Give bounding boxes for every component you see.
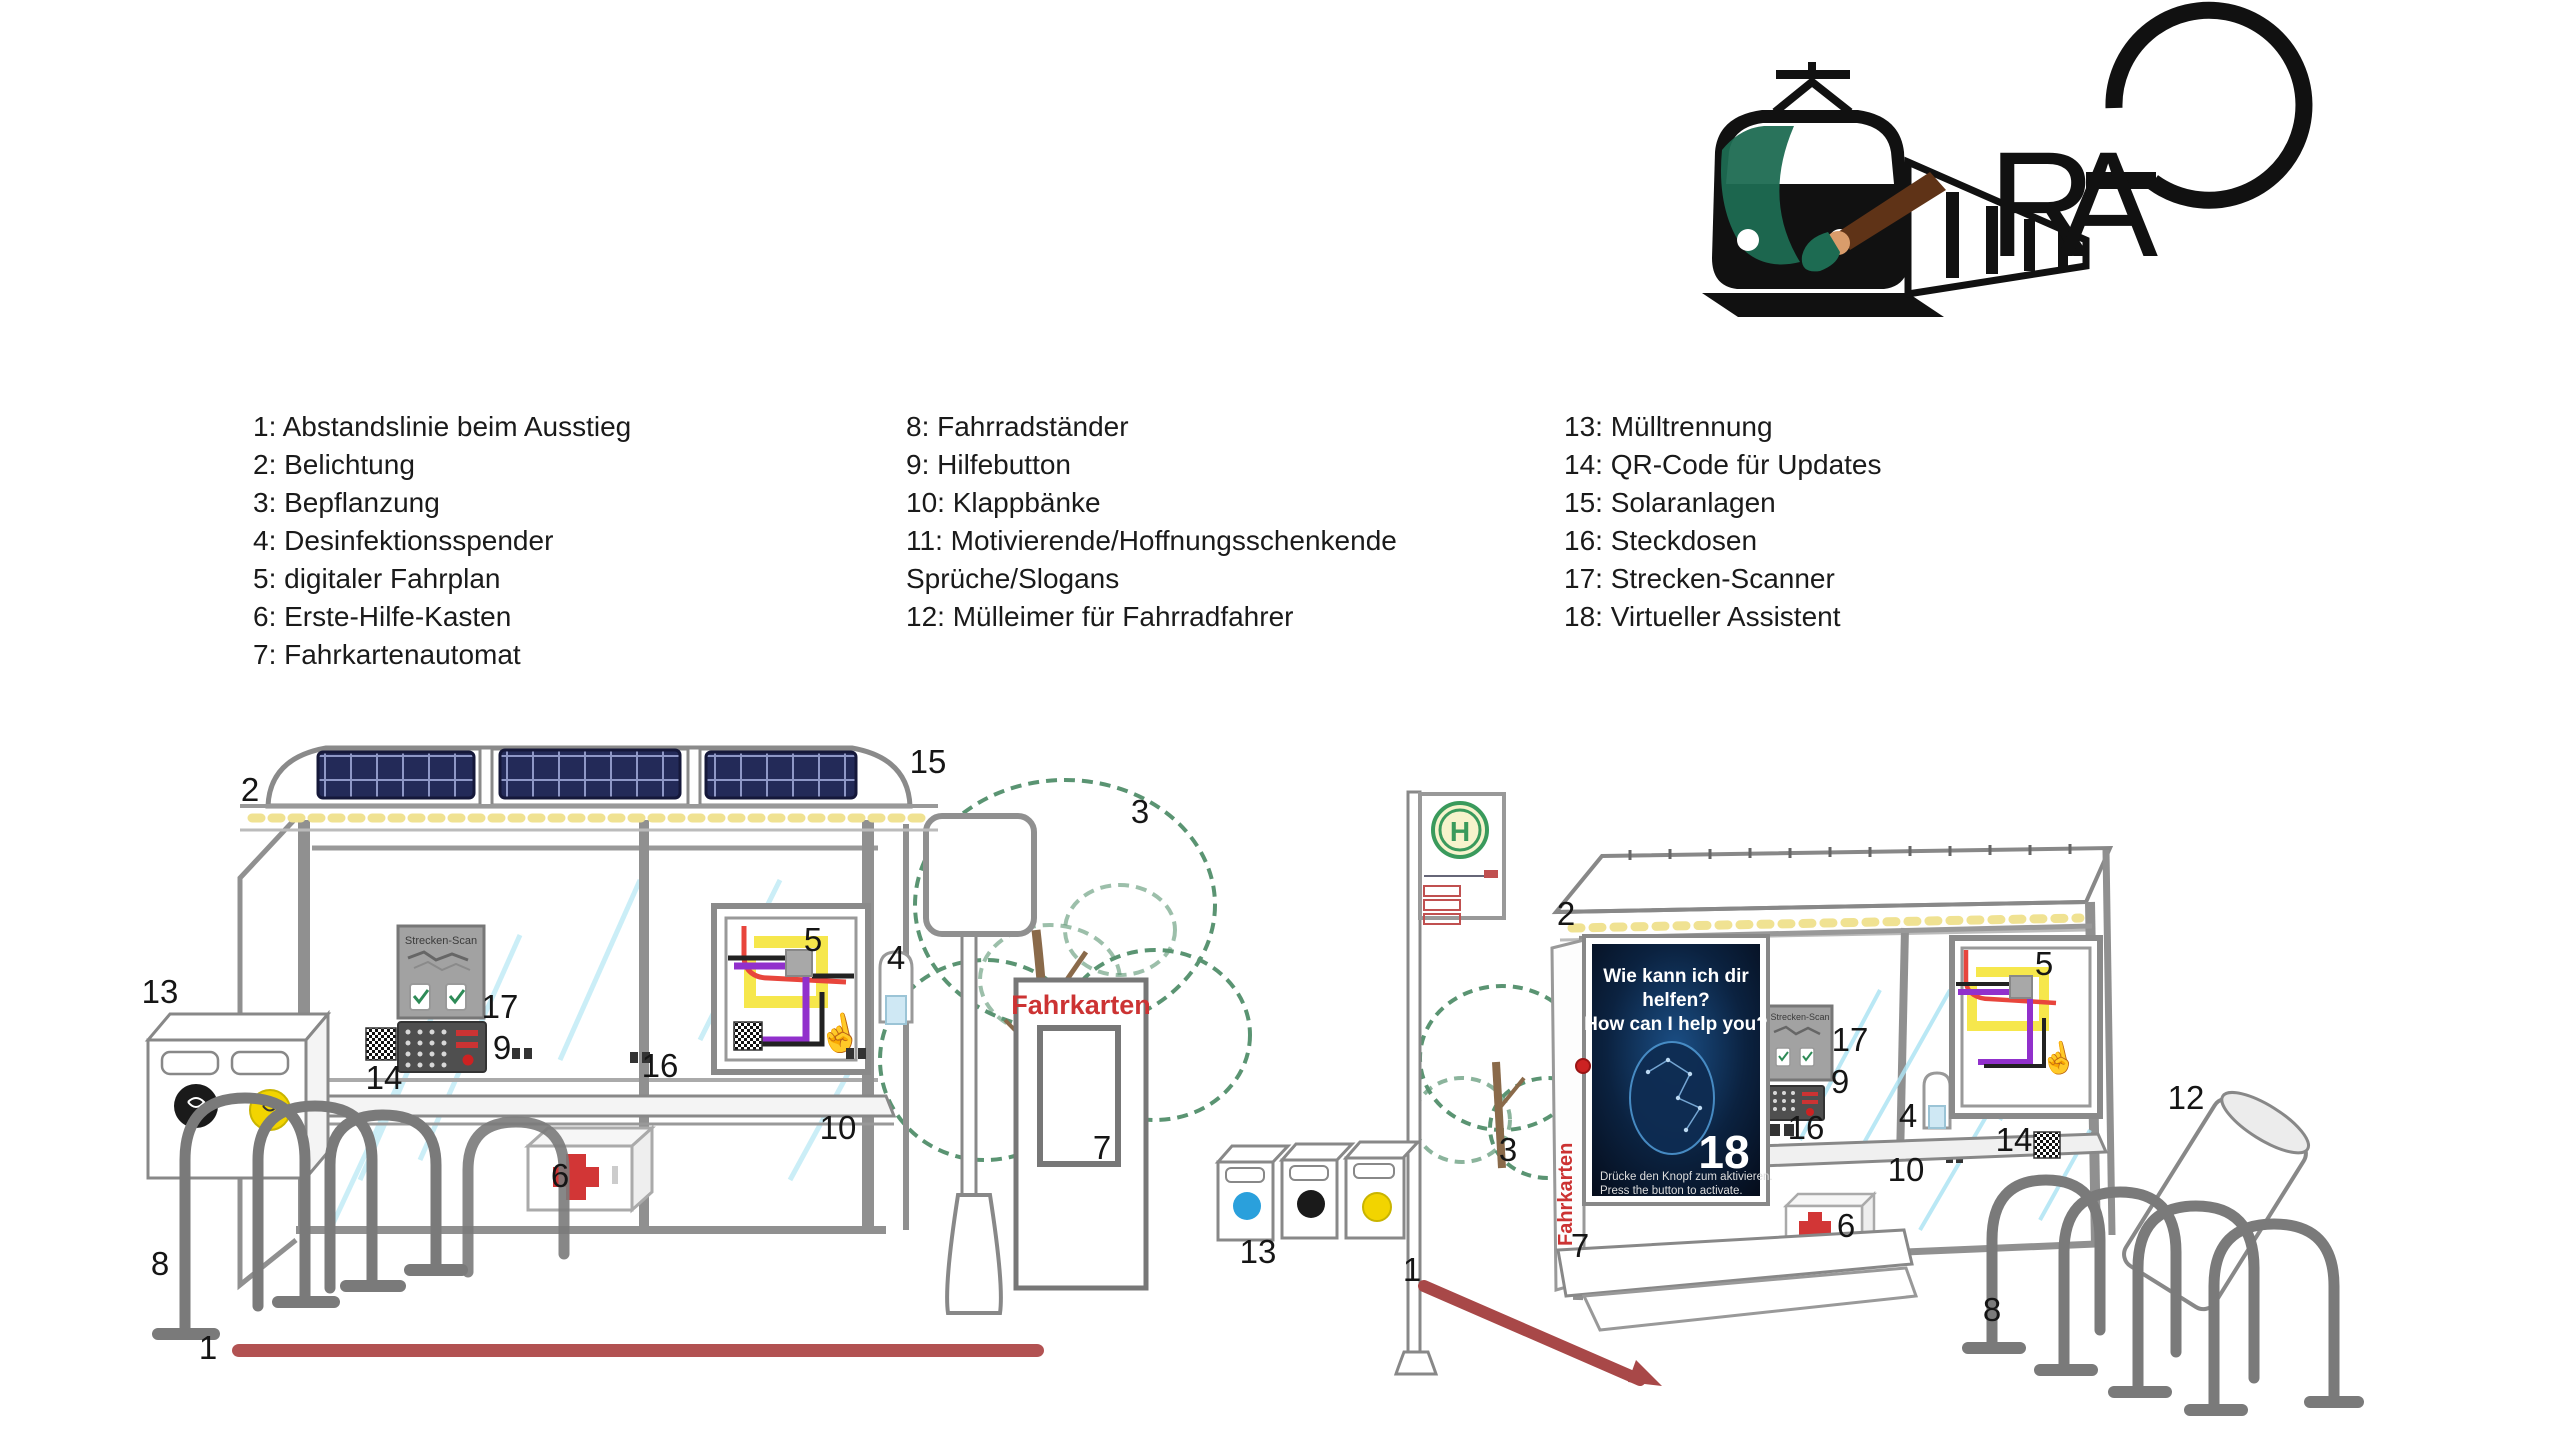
legend-item: 9: Hilfebutton [906, 446, 1506, 484]
qr-code[interactable] [366, 1028, 396, 1060]
left-shelter: Strecken-Scan [240, 748, 938, 1285]
waste-bin[interactable] [1282, 1144, 1352, 1238]
bin-slot[interactable] [162, 1052, 218, 1074]
route-scanner-panel[interactable]: Strecken-Scan [398, 926, 484, 1018]
fahrkarten-side-label: Fahrkarten [1555, 1143, 1577, 1246]
left-distance-line [232, 1344, 1044, 1357]
legend-item: 15: Solaranlagen [1564, 484, 2124, 522]
legend-item: 12: Mülleimer für Fahrradfahrer [906, 598, 1506, 636]
legend-item: 6: Erste-Hilfe-Kasten [253, 598, 813, 636]
legend-item: 17: Strecken-Scanner [1564, 560, 2124, 598]
red-cross-icon [1799, 1221, 1831, 1235]
solar-panel [500, 750, 680, 798]
disinfection-dispenser[interactable] [1924, 1073, 1950, 1128]
roof-solar-panels [268, 748, 910, 806]
disinfection-dispenser[interactable] [880, 952, 912, 1024]
bus-stop-illustration: R A Fahrkarten [0, 0, 2560, 1440]
legend-column-3: 13: Mülltrennung14: QR-Code für Updates1… [1564, 408, 2124, 636]
assistant-note-de: Drücke den Knopf zum aktivieren. [1600, 1171, 1773, 1183]
bin-sticker-blue [1233, 1192, 1261, 1220]
digital-face [1630, 1042, 1714, 1154]
right-assistant-kiosk: Fahrkarten Wie kann ich dir helfen? How … [1552, 936, 1916, 1330]
assistant-question-en: How can I help you? [1584, 1014, 1768, 1035]
legend-item: 3: Bepflanzung [253, 484, 813, 522]
legend-item: 10: Klappbänke [906, 484, 1506, 522]
strecken-scan-title: Strecken-Scan [405, 935, 477, 947]
right-waste-bins [1218, 1142, 1418, 1240]
activate-button[interactable] [1576, 1059, 1590, 1073]
help-button[interactable] [463, 1055, 474, 1066]
rag-monogram-logo: R A [1988, 10, 2304, 288]
legend-item: 16: Steckdosen [1564, 522, 2124, 560]
strecken-scan-title: Strecken-Scan [1770, 1012, 1829, 1022]
bin-sticker-yellow [1363, 1193, 1391, 1221]
legend-item: 8: Fahrradständer [906, 408, 1506, 446]
first-aid-kit[interactable] [528, 1128, 652, 1210]
legend-item: 4: Desinfektionsspender [253, 522, 813, 560]
legend-item: 18: Virtueller Assistent [1564, 598, 2124, 636]
digital-timetable-display[interactable]: ☝ [714, 906, 868, 1072]
monogram-letter-a: A [2058, 120, 2158, 288]
assistant-note-en: Press the button to activate. [1600, 1185, 1743, 1197]
help-button[interactable] [1806, 1108, 1814, 1116]
bin-sticker-black [1297, 1190, 1325, 1218]
right-bike-racks[interactable] [1968, 1180, 2358, 1410]
help-button-keypad[interactable] [398, 1022, 486, 1072]
route-scanner-panel[interactable]: Strecken-Scan [1768, 1006, 1832, 1080]
qr-code[interactable] [2034, 1132, 2060, 1158]
legend-item: 1: Abstandslinie beim Ausstieg [253, 408, 813, 446]
solar-panel [706, 752, 856, 798]
legend-item: 2: Belichtung [253, 446, 813, 484]
digital-timetable-display[interactable]: ☝ [1952, 938, 2100, 1116]
legend-item: 7: Fahrkartenautomat [253, 636, 813, 674]
qr-code[interactable] [734, 1022, 762, 1050]
legend-item: 11: Motivierende/Hoffnungsschenkende Spr… [906, 522, 1506, 598]
assistant-question-de-2: helfen? [1642, 990, 1710, 1011]
fahrkarten-label: Fahrkarten [1011, 990, 1151, 1020]
left-ticket-machine: Fahrkarten [1011, 980, 1151, 1288]
waste-bin[interactable] [1218, 1146, 1288, 1240]
legend-column-1: 1: Abstandslinie beim Ausstieg2: Belicht… [253, 408, 813, 674]
solar-panel [318, 752, 474, 798]
help-button-keypad[interactable] [1768, 1086, 1824, 1120]
legend-item: 13: Mülltrennung [1564, 408, 2124, 446]
h-sign-letter: H [1450, 816, 1470, 847]
poster-canvas: R A Fahrkarten [0, 0, 2560, 1440]
legend-item: 5: digitaler Fahrplan [253, 560, 813, 598]
assistant-question-de-1: Wie kann ich dir [1603, 966, 1749, 987]
legend-column-2: 8: Fahrradständer9: Hilfebutton10: Klapp… [906, 408, 1506, 636]
legend-item: 14: QR-Code für Updates [1564, 446, 2124, 484]
ticket-window [1040, 1028, 1118, 1164]
bin-slot[interactable] [232, 1052, 288, 1074]
